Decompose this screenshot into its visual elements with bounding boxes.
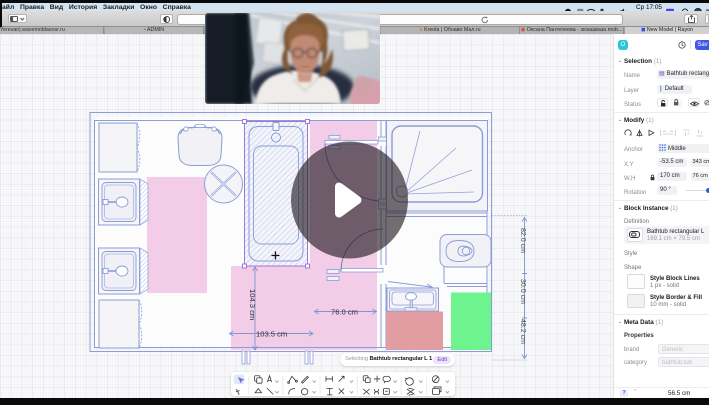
- svg-text:82.0 cm: 82.0 cm: [519, 228, 526, 253]
- svg-text:48.2 cm: 48.2 cm: [519, 319, 526, 344]
- svg-text:30.0 cm: 30.0 cm: [519, 279, 526, 304]
- svg-text:76.0 cm: 76.0 cm: [331, 308, 358, 317]
- svg-text:103.5 cm: 103.5 cm: [256, 330, 287, 339]
- svg-text:104.3 cm: 104.3 cm: [248, 289, 257, 320]
